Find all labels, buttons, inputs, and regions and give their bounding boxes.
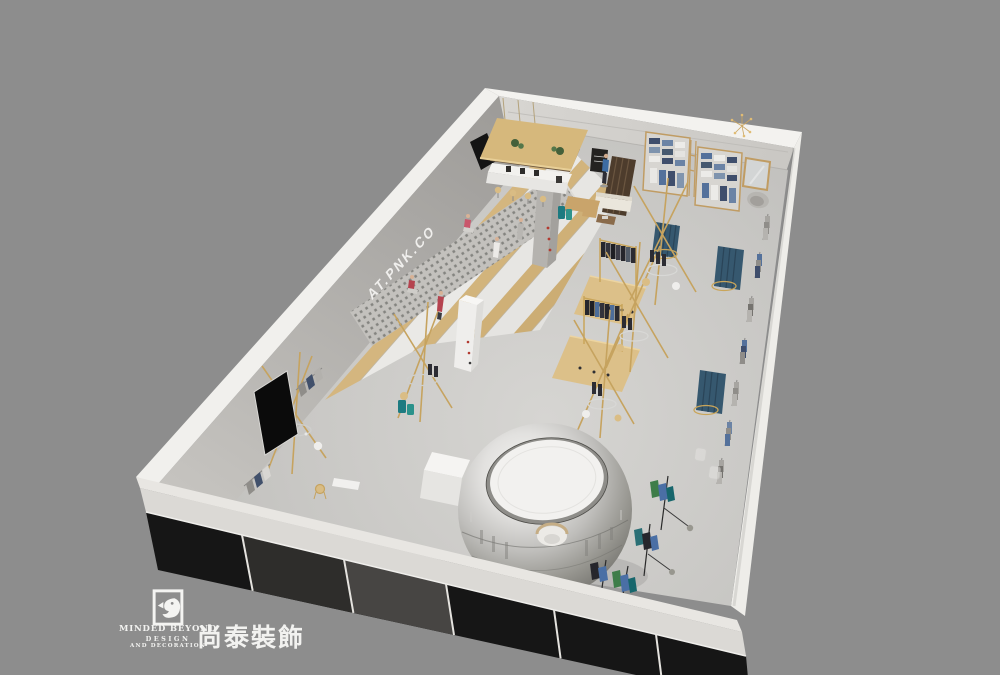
render-canvas: AT.PNK.CO MINDED BEYOND DESIGN AND DECOR… <box>0 0 1000 675</box>
coffee-machine <box>506 166 511 172</box>
teal-case <box>398 400 406 413</box>
logo-brand-cn: 尚泰裝飾 <box>197 618 305 654</box>
cash-register <box>556 176 562 183</box>
coffee-machine <box>520 168 525 174</box>
teal-case <box>407 404 414 415</box>
bird-square-logo-icon <box>152 589 184 626</box>
coffee-machine <box>534 170 539 176</box>
wall-mirror <box>743 158 770 190</box>
store-render: AT.PNK.CO <box>0 0 1000 675</box>
wall-cubby-unit-2 <box>695 147 742 211</box>
